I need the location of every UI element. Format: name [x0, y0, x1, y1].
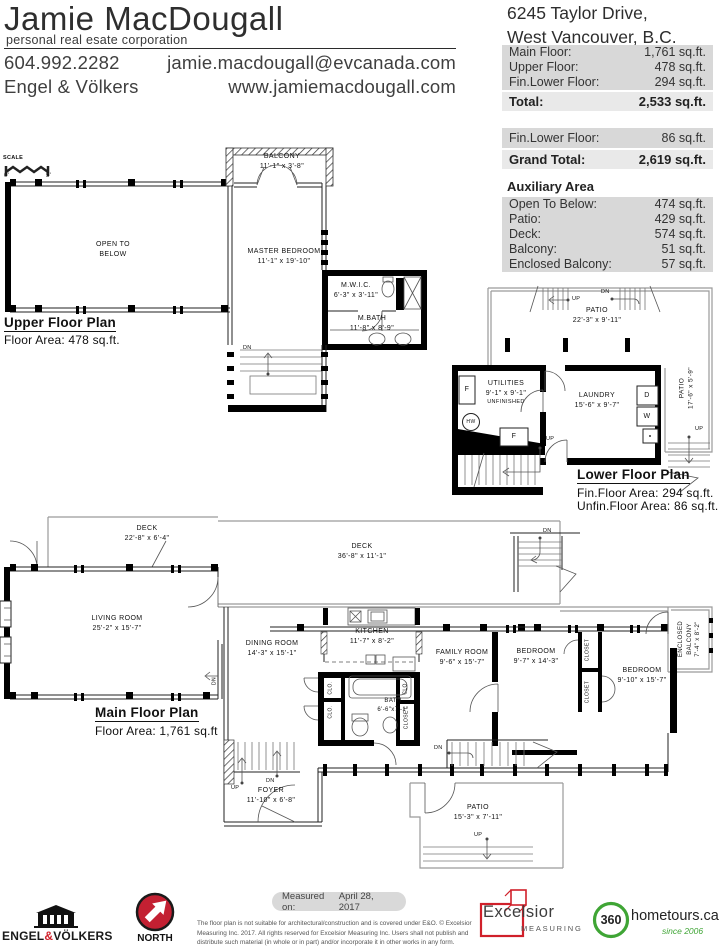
lower-plan-fin-area: Fin.Floor Area: 294 sq.ft.: [577, 486, 714, 500]
room-dim: 11'-8" x 8'-9": [350, 324, 394, 334]
hometours-label[interactable]: hometours.ca: [631, 908, 719, 924]
room-dim: 11'-10" x 6'-8": [247, 796, 296, 806]
room-label-mwic: M.W.I.C. 6'-3" x 3'-11": [334, 281, 378, 301]
disclaimer-text: The floor plan is not suitable for archi…: [197, 919, 473, 948]
dn-label: DN: [434, 745, 443, 751]
room-name: FOYER: [247, 786, 296, 796]
room-label-utilities: UTILITIES 9'-1" x 9'-1" UNFINISHED: [486, 379, 526, 407]
room-label-laundry: LAUNDRY 15'-6" x 9'-7": [575, 391, 620, 411]
room-dim: 22'-8" x 6'-4": [125, 534, 170, 544]
room-name: BALCONY: [686, 621, 695, 657]
room-name: KITCHEN: [350, 627, 394, 637]
room-label-patio-side: PATIO 17'-6" x 5'-9": [678, 367, 697, 409]
room-label-patio-upper: PATIO 22'-3" x 9'-11": [573, 306, 622, 326]
room-label-balcony: BALCONY 11'-1" x 3'-8": [260, 152, 304, 172]
upper-plan-title: Upper Floor Plan: [4, 315, 116, 332]
closet-label: CLOSET: [584, 681, 591, 703]
closet-label: CLO.: [402, 681, 409, 694]
fixture-hw-label: HW: [466, 419, 475, 426]
closet-label: CLO.: [327, 705, 334, 718]
room-dim: 9'-6" x 15'-7": [436, 658, 488, 668]
closet-label: CLO.: [327, 681, 334, 694]
room-name: DINING ROOM: [246, 639, 299, 649]
closet-label: CLOSET: [403, 707, 410, 729]
room-label-kitchen: KITCHEN 11'-7" x 8'-2": [350, 627, 394, 647]
dn-label: DN: [243, 345, 252, 351]
north-label: NORTH: [134, 933, 176, 944]
dn-label: DN: [601, 289, 610, 295]
room-label-patio-main: PATIO 15'-3" x 7'-11": [454, 803, 503, 823]
scale-five: 5': [46, 173, 51, 179]
room-note: UNFINISHED: [486, 399, 526, 407]
measured-on-badge: Measured on: April 28, 2017: [272, 892, 406, 911]
ev-ampersand: &: [44, 929, 53, 943]
room-dim: 14'-3" x 15'-1": [246, 649, 299, 659]
room-name: MASTER BEDROOM: [248, 247, 321, 257]
ev-word-1: ENGEL: [2, 929, 44, 943]
room-name: PATIO: [573, 306, 622, 316]
lower-plan-title: Lower Floor Plan: [577, 467, 690, 484]
dn-label: DN: [543, 528, 552, 534]
room-name: DECK: [338, 542, 387, 552]
room-label-deck-left: DECK 22'-8" x 6'-4": [125, 524, 170, 544]
fixture-d-label: D: [644, 391, 649, 401]
main-plan-area: Floor Area: 1,761 sq.ft: [95, 724, 218, 738]
room-dim: 9'-10" x 15'-7": [617, 676, 666, 686]
room-label-enclosed-balcony: ENCLOSED BALCONY 7'-4" x 8'-2": [677, 621, 703, 657]
room-name: PATIO: [678, 367, 687, 409]
room-dim: 11'-1" x 19'-10": [248, 257, 321, 267]
room-dim: 36'-8" x 11'-1": [338, 552, 387, 562]
up-label: UP: [695, 426, 703, 432]
room-label-dining-room: DINING ROOM 14'-3" x 15'-1": [246, 639, 299, 659]
room-label-open-to-below: OPEN TO BELOW: [96, 240, 130, 260]
room-dim: 9'-7" x 14'-3": [514, 657, 559, 667]
room-name: PATIO: [454, 803, 503, 813]
room-name: ENCLOSED: [677, 621, 686, 657]
excelsior-measuring-label: MEASURING: [521, 924, 583, 933]
room-label-bedroom-1: BEDROOM 9'-7" x 14'-3": [514, 647, 559, 667]
room-label-living-room: LIVING ROOM 25'-2" x 15'-7": [91, 614, 142, 634]
room-name: M.W.I.C.: [334, 281, 378, 291]
dn-label: DN: [211, 677, 218, 685]
room-label-master-bedroom: MASTER BEDROOM 11'-1" x 19'-10": [248, 247, 321, 267]
main-plan-title: Main Floor Plan: [95, 705, 199, 722]
up-label: UP: [474, 832, 482, 838]
excelsior-logo-text: Excelsior: [483, 903, 554, 922]
room-name: BALCONY: [260, 152, 304, 162]
north-compass-icon: [134, 892, 176, 934]
fixture-f-label: F: [512, 432, 517, 442]
room-dim: 11'-1" x 3'-8": [260, 162, 304, 172]
room-label-foyer: FOYER 11'-10" x 6'-8": [247, 786, 296, 806]
room-name: BEDROOM: [514, 647, 559, 657]
fixture-w-label: W: [643, 412, 650, 422]
room-dim: 11'-7" x 8'-2": [350, 637, 394, 647]
hometours-since-label: since 2006: [662, 926, 703, 936]
room-dim: 25'-2" x 15'-7": [91, 624, 142, 634]
fixture-f-label: F: [465, 385, 470, 395]
up-label: UP: [231, 785, 239, 791]
ev-word-2: VÖLKERS: [53, 929, 112, 943]
room-dim: 9'-1" x 9'-1": [486, 389, 526, 399]
dn-label: DN: [266, 778, 275, 784]
room-name: M.BATH: [350, 314, 394, 324]
measured-on-date: April 28, 2017: [339, 891, 396, 913]
room-name: FAMILY ROOM: [436, 648, 488, 658]
scale-zero: 0': [4, 173, 9, 179]
room-label-mbath: M.BATH 11'-8" x 8'-9": [350, 314, 394, 334]
room-name: LIVING ROOM: [91, 614, 142, 624]
room-name: BELOW: [96, 250, 130, 260]
room-dim: 17'-6" x 5'-9": [687, 367, 696, 409]
room-name: LAUNDRY: [575, 391, 620, 401]
room-dim: 15'-3" x 7'-11": [454, 813, 503, 823]
room-name: BATH: [377, 697, 408, 706]
upper-plan-area: Floor Area: 478 sq.ft.: [4, 333, 120, 347]
engel-volkers-logo: ENGEL&VÖLKERS: [2, 929, 108, 943]
room-label-bedroom-2: BEDROOM 9'-10" x 15'-7": [617, 666, 666, 686]
up-label: UP: [546, 436, 554, 442]
lower-plan-unfin-area: Unfin.Floor Area: 86 sq.ft.: [577, 499, 718, 513]
360-label: 360: [592, 913, 630, 927]
room-dim: 15'-6" x 9'-7": [575, 401, 620, 411]
room-name: DECK: [125, 524, 170, 534]
room-name: UTILITIES: [486, 379, 526, 389]
up-label: UP: [572, 296, 580, 302]
room-label-deck-main: DECK 36'-8" x 11'-1": [338, 542, 387, 562]
room-dim: 22'-3" x 9'-11": [573, 316, 622, 326]
room-dim: 7'-4" x 8'-2": [694, 621, 703, 657]
room-dim: 6'-3" x 3'-11": [334, 291, 378, 301]
room-label-family-room: FAMILY ROOM 9'-6" x 15'-7": [436, 648, 488, 668]
engel-volkers-house-icon: [30, 903, 82, 929]
closet-label: CLOSET: [584, 639, 591, 661]
room-name: BEDROOM: [617, 666, 666, 676]
measured-on-label: Measured on:: [282, 891, 339, 913]
room-name: OPEN TO: [96, 240, 130, 250]
scale-label: SCALE: [3, 155, 23, 161]
